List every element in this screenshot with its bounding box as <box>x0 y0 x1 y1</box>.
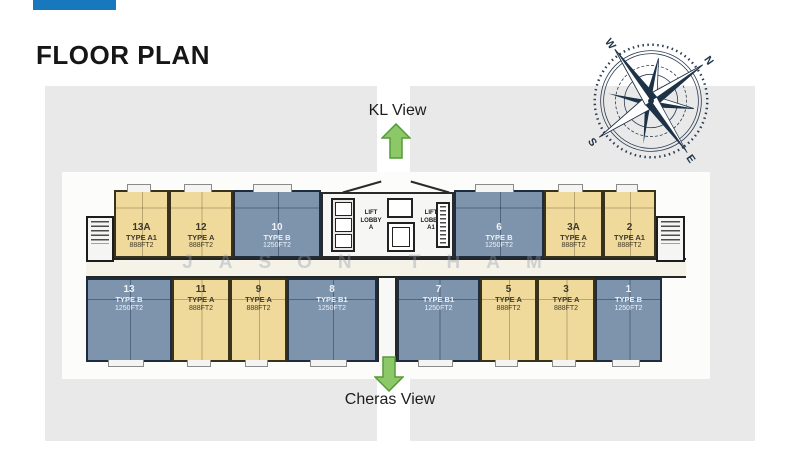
unit-10: 10 TYPE B 1250FT2 <box>233 190 321 258</box>
unit-type: TYPE A1 <box>614 234 645 242</box>
cheras-view-label: Cheras View <box>330 391 450 409</box>
unit-area: 1250FT2 <box>263 242 291 250</box>
unit-11: 11 TYPE A 888FT2 <box>172 278 230 362</box>
lift-lobby-a-label: LIFT LOBBY A <box>355 210 387 233</box>
lift-shaft <box>387 198 413 218</box>
unit-number: 12 <box>195 222 206 233</box>
compass-label-e: E <box>683 153 697 166</box>
unit-type: TYPE B1 <box>423 296 454 304</box>
unit-area: 888FT2 <box>246 305 270 313</box>
unit-area: 888FT2 <box>496 305 520 313</box>
logo-bar <box>33 0 116 10</box>
unit-12: 12 TYPE A 888FT2 <box>169 190 233 258</box>
lift-lobby-core: LIFT LOBBY A LIFT LOBBY A1 <box>321 192 454 258</box>
unit-5: 5 TYPE A 888FT2 <box>480 278 537 362</box>
unit-number: 1 <box>626 284 632 295</box>
unit-area: 888FT2 <box>189 305 213 313</box>
kl-view-label: KL View <box>340 102 455 120</box>
unit-area: 1250FT2 <box>614 305 642 313</box>
unit-type: TYPE A <box>188 234 215 242</box>
unit-area: 1250FT2 <box>485 242 513 250</box>
down-arrow-icon <box>374 356 404 392</box>
unit-number: 3 <box>563 284 569 295</box>
stairwell-left <box>86 216 114 262</box>
unit-3A: 3A TYPE A 888FT2 <box>544 190 603 258</box>
unit-type: TYPE B <box>615 296 642 304</box>
lift-shaft-column <box>331 198 355 252</box>
unit-type: TYPE A1 <box>126 234 157 242</box>
compass-icon: N E S W <box>572 22 730 180</box>
unit-area: 888FT2 <box>129 242 153 250</box>
lift-cab-icon <box>335 202 352 216</box>
unit-type: TYPE A <box>553 296 580 304</box>
core-stair <box>436 202 450 248</box>
unit-area: 1250FT2 <box>115 305 143 313</box>
lift-shaft <box>387 222 415 252</box>
lift-cab-icon <box>335 218 352 232</box>
bottom-corridor-gap <box>377 278 397 362</box>
unit-type: TYPE A <box>188 296 215 304</box>
unit-number: 10 <box>271 222 282 233</box>
unit-number: 9 <box>256 284 262 295</box>
unit-number: 2 <box>627 222 633 233</box>
unit-1: 1 TYPE B 1250FT2 <box>595 278 662 362</box>
unit-number: 8 <box>329 284 335 295</box>
unit-area: 888FT2 <box>617 242 641 250</box>
stair-treads-icon <box>661 221 680 244</box>
floor-plan-slide: FLOOR PLAN <box>0 0 800 450</box>
compass-label-n: N <box>701 54 715 67</box>
unit-6: 6 TYPE B 1250FT2 <box>454 190 544 258</box>
unit-13: 13 TYPE B 1250FT2 <box>86 278 172 362</box>
unit-number: 13 <box>123 284 134 295</box>
unit-type: TYPE A <box>495 296 522 304</box>
unit-area: 1250FT2 <box>424 305 452 313</box>
unit-type: TYPE B <box>115 296 142 304</box>
unit-3: 3 TYPE A 888FT2 <box>537 278 595 362</box>
lift-cab-icon <box>335 234 352 248</box>
unit-type: TYPE B <box>263 234 290 242</box>
stair-treads-icon <box>440 206 446 244</box>
unit-number: 6 <box>496 222 502 233</box>
watermark: JASON THAM <box>140 252 610 274</box>
compass-label-s: S <box>585 136 599 149</box>
unit-number: 11 <box>196 284 207 295</box>
unit-8: 8 TYPE B1 1250FT2 <box>287 278 377 362</box>
unit-area: 888FT2 <box>189 242 213 250</box>
unit-type: TYPE A <box>560 234 587 242</box>
unit-number: 3A <box>567 222 580 233</box>
up-arrow-icon <box>381 123 411 159</box>
stair-treads-icon <box>91 221 109 244</box>
unit-7: 7 TYPE B1 1250FT2 <box>397 278 480 362</box>
unit-9: 9 TYPE A 888FT2 <box>230 278 287 362</box>
unit-area: 888FT2 <box>554 305 578 313</box>
page-title: FLOOR PLAN <box>36 40 210 71</box>
unit-2: 2 TYPE A1 888FT2 <box>603 190 656 258</box>
unit-number: 5 <box>506 284 512 295</box>
unit-area: 888FT2 <box>561 242 585 250</box>
unit-13A: 13A TYPE A1 888FT2 <box>114 190 169 258</box>
stairwell-right <box>656 216 685 262</box>
unit-area: 1250FT2 <box>318 305 346 313</box>
unit-number: 7 <box>436 284 442 295</box>
unit-type: TYPE B1 <box>316 296 347 304</box>
unit-type: TYPE A <box>245 296 272 304</box>
unit-type: TYPE B <box>485 234 512 242</box>
unit-number: 13A <box>132 222 150 233</box>
